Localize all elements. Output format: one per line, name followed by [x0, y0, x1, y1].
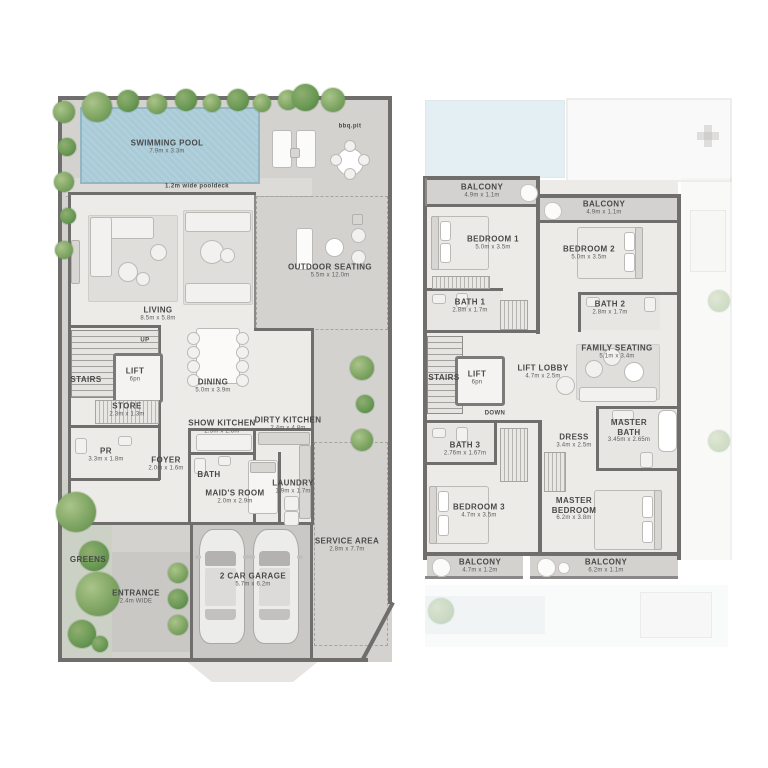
- label-ground-stairs: STAIRS: [70, 375, 101, 385]
- bed2-pillow: [624, 232, 635, 251]
- master-bed-headboard: [654, 490, 662, 550]
- bed2-headboard: [635, 227, 643, 279]
- ff-balcony-tl-wall: [427, 204, 537, 207]
- label-ground-lift: LIFT 6pn: [126, 367, 144, 384]
- label-garage: 2 CAR GARAGE 5.7m x 6.2m: [220, 572, 286, 589]
- bed1-pillow: [440, 221, 451, 241]
- ghost-tree: [708, 290, 730, 312]
- bed1-headboard: [431, 216, 439, 270]
- label-balcony-tr: BALCONY 4.9m x 1.1m: [583, 200, 625, 217]
- ff-bath3-wall-bottom: [423, 462, 497, 465]
- master-wc: [640, 452, 653, 468]
- label-entrance: ENTRANCE 2.4m WIDE: [112, 589, 160, 606]
- bed3-pillow: [438, 491, 449, 512]
- label-master-bedroom: MASTER BEDROOM 6.2m x 3.8m: [543, 496, 605, 522]
- family-chair-1: [585, 360, 603, 378]
- bath3-sink: [432, 428, 446, 438]
- ff-bath2-wall-top: [578, 292, 678, 295]
- ghost-plus-shape: [704, 125, 712, 147]
- ff-wall-top-left: [423, 176, 540, 180]
- ghost-bottom-pad: [640, 592, 712, 638]
- label-maids-room: MAID'S ROOM 2.0m x 2.9m: [205, 489, 264, 506]
- ff-bath1-wall-bottom: [427, 330, 539, 333]
- label-dining: DINING 5.0m x 3.9m: [195, 378, 230, 395]
- label-dirty-kitchen: DIRTY KITCHEN 2.4m x 4.8m: [255, 416, 322, 433]
- floor-plan-canvas: SWIMMING POOL 7.9m x 3.3m 1.2m wide pool…: [0, 0, 768, 768]
- label-service-area: SERVICE AREA 2.8m x 7.7m: [315, 537, 379, 554]
- ghost-tree: [708, 430, 730, 452]
- ff-bath3-wall-right: [494, 422, 497, 465]
- label-living: LIVING 8.5m x 5.8m: [140, 306, 175, 323]
- label-bbq-pit: bbq.pit: [339, 123, 362, 130]
- dress-wardrobe-3: [500, 300, 528, 330]
- ff-mid-wall-left: [423, 420, 541, 423]
- balcony-chair: [432, 558, 451, 577]
- ff-wall-bottom: [423, 552, 681, 556]
- label-ff-lift: LIFT 6pn: [468, 370, 486, 387]
- bath1-sink: [432, 294, 446, 304]
- label-ff-stairs: STAIRS: [428, 373, 459, 383]
- ff-balcony-tr-wall: [540, 220, 678, 223]
- ff-dress-wall: [596, 468, 681, 471]
- master-tub: [658, 410, 677, 452]
- bath2-wc: [644, 297, 656, 312]
- label-greens: GREENS: [70, 555, 106, 565]
- ff-bath2-wall: [578, 292, 581, 332]
- ghost-right-block: [690, 210, 726, 272]
- dress-wardrobe-2: [544, 452, 566, 492]
- label-pr: PR 3.3m x 1.8m: [88, 447, 123, 464]
- bed2-pillow: [624, 253, 635, 272]
- ghost-tree: [428, 598, 454, 624]
- balcony-chair: [520, 184, 538, 202]
- balcony-rail-tl: [425, 178, 427, 206]
- label-bedroom1: BEDROOM 1 5.0m x 3.5m: [467, 235, 519, 252]
- label-pooldeck: 1.2m wide pooldeck: [165, 183, 229, 190]
- bed3-pillow: [438, 515, 449, 536]
- bed3-headboard: [429, 486, 437, 544]
- ff-wall-right: [677, 194, 681, 560]
- ff-lower-divider: [538, 420, 542, 556]
- label-master-bath: MASTER BATH 3.45m x 2.65m: [598, 418, 660, 444]
- label-show-kitchen: SHOW KITCHEN 2.3m x 2.8m: [188, 419, 255, 436]
- balcony-chair: [544, 202, 562, 220]
- label-bedroom2: BEDROOM 2 5.0m x 3.5m: [563, 245, 615, 262]
- label-dress: DRESS 3.4m x 2.5m: [556, 433, 591, 450]
- bed1-pillow: [440, 243, 451, 263]
- label-bath2: BATH 2 2.8m x 1.7m: [592, 300, 627, 317]
- ghost-pool: [425, 100, 565, 178]
- balcony-rail-br: [530, 576, 678, 579]
- family-table: [624, 362, 644, 382]
- ff-master-bath-wall: [596, 406, 681, 409]
- label-bath: BATH: [197, 470, 220, 480]
- master-pillow: [642, 496, 653, 518]
- balcony-chair: [558, 562, 570, 574]
- dress-wardrobe-1: [500, 428, 528, 482]
- label-balcony-br: BALCONY 6.2m x 1.1m: [585, 558, 627, 575]
- label-outdoor-seating: OUTDOOR SEATING 5.5m x 12.0m: [288, 263, 372, 280]
- label-swimming-pool: SWIMMING POOL 7.9m x 3.3m: [131, 139, 204, 156]
- label-foyer: FOYER 2.0m x 1.6m: [148, 456, 183, 473]
- label-balcony-tl: BALCONY 4.9m x 1.1m: [461, 183, 503, 200]
- label-bath1: BATH 1 2.8m x 1.7m: [452, 298, 487, 315]
- label-family-seating: FAMILY SEATING 5.1m x 3.4m: [581, 344, 652, 361]
- label-balcony-bl: BALCONY 4.7m x 1.2m: [459, 558, 501, 575]
- balcony-chair: [537, 558, 556, 577]
- master-pillow: [642, 521, 653, 543]
- bedroom1-dresser: [432, 276, 490, 289]
- label-store: STORE 2.3m x 1.3m: [109, 402, 144, 419]
- label-up: UP: [140, 337, 149, 344]
- label-down: DOWN: [485, 410, 506, 417]
- ff-bedroom-divider: [536, 198, 540, 334]
- ff-wall-top-right: [536, 194, 681, 198]
- label-bedroom3: BEDROOM 3 4.7m x 3.5m: [453, 503, 505, 520]
- label-bath3: BATH 3 2.76m x 1.67m: [444, 441, 486, 458]
- family-sofa: [579, 387, 657, 402]
- first-floor-plan: BALCONY 4.9m x 1.1m BALCONY 4.9m x 1.1m …: [0, 0, 768, 768]
- label-lift-lobby: LIFT LOBBY 4.7m x 2.5m: [517, 364, 568, 381]
- label-laundry: LAUNDRY 1.9m x 1.7m: [272, 479, 314, 496]
